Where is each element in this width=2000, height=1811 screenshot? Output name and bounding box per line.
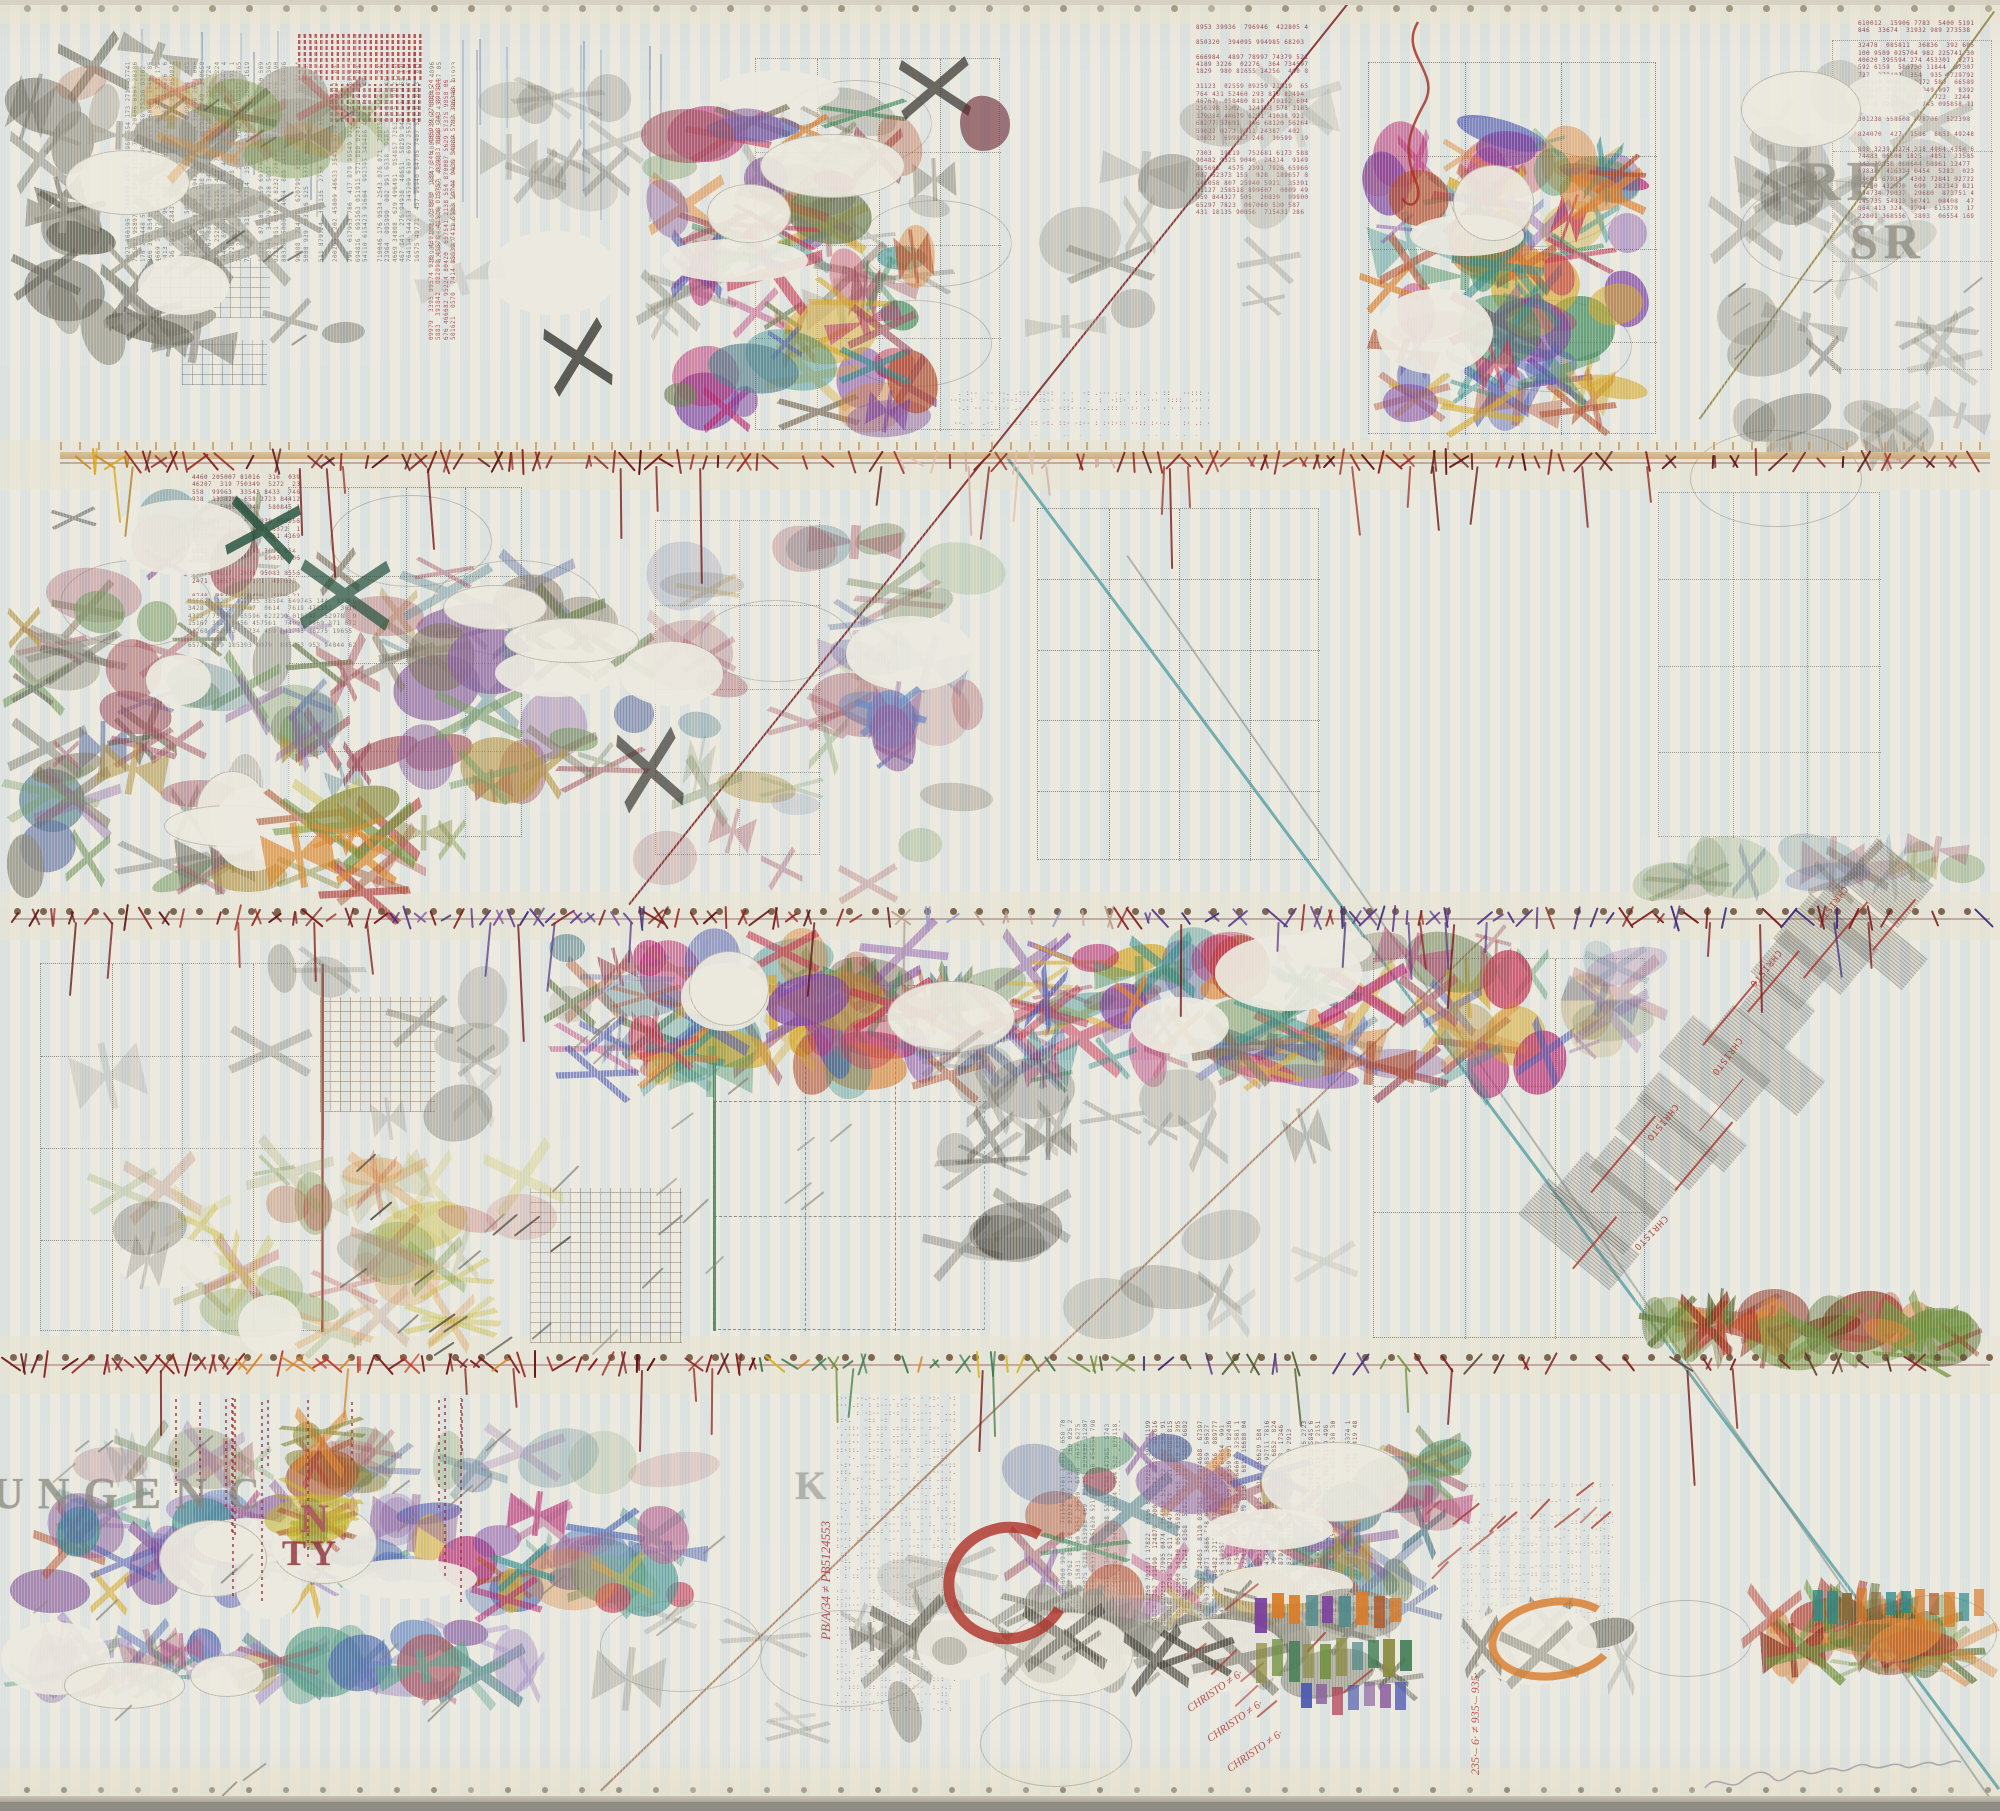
edge-perforation-dot [875,5,882,12]
color-bar [1813,1590,1823,1621]
pencil-shape [50,506,97,530]
color-bar [1272,1593,1284,1618]
pencil-shape [52,59,112,107]
feed-tick [1960,442,1962,450]
feed-tick [174,442,176,450]
perforation-hole [270,1354,277,1361]
feed-tick [459,442,461,450]
edge-perforation-dot [949,1787,955,1793]
color-bar [1368,1640,1379,1669]
color-bar [1352,1642,1363,1670]
pencil-shape [1008,1104,1060,1166]
edge-perforation-dot [209,5,216,12]
thread-stitch [637,1354,639,1371]
red-dotted-drip [267,1398,269,1466]
perforation-hole [1154,1354,1161,1361]
edge-perforation-dot [394,1787,400,1793]
feed-tick [1485,442,1487,450]
edge-perforation-dot [209,1787,215,1793]
stencil-letters: TY [282,1532,340,1574]
edge-perforation-dot [172,1787,178,1793]
edge-perforation-dot [1393,5,1400,12]
perforation-hole [1388,1354,1395,1361]
color-bar [1289,1595,1301,1625]
table-row-line [1659,579,1881,580]
edge-perforation-dot [1652,1787,1658,1793]
pencil-shape [320,213,348,263]
feed-tick [687,442,689,450]
edge-perforation-dot [1356,5,1363,12]
feed-tick [706,442,708,450]
red-dotted-drip [351,1398,353,1461]
print-texture: . :·· ·· ··. .::: ::·: · · ·: .··· ·. · … [950,390,1250,436]
color-bar [1944,1592,1954,1628]
feed-tick [801,442,803,450]
perforation-hole [1648,1354,1655,1361]
feed-tick [421,442,423,450]
perforation-hole [1600,908,1607,915]
perforation-hole [660,1354,667,1361]
thread-long-tail [160,1370,162,1436]
edge-perforation-dot [1208,5,1215,12]
pencil-shape [66,1035,149,1116]
perforation-hole [846,908,853,915]
feed-tick [1941,442,1943,450]
feed-tick [1086,442,1088,450]
perforation-hole [426,1354,433,1361]
edge-perforation-dot [1689,1787,1695,1793]
feed-tick [611,442,613,450]
feed-tick [383,442,385,450]
feed-tick [877,442,879,450]
pencil-shape [180,182,271,219]
perforation-hole [1050,1354,1057,1361]
edge-perforation-dot [616,5,623,12]
feed-tick [1029,442,1031,450]
edge-perforation-dot [1763,5,1770,12]
shape-cluster [610,515,1010,905]
edge-perforation-dot [1800,1787,1806,1793]
perforation-hole [196,908,203,915]
red-dotted-drip [444,1398,446,1576]
pencil-shape [1109,287,1156,330]
pencil-shape [718,1617,812,1659]
edge-perforation-dot [246,1787,252,1793]
shape-cluster [1560,940,1670,1060]
edge-perforation-dot [875,1787,881,1793]
edge-perforation-dot [690,1787,696,1793]
perforation-hole [1960,1354,1967,1361]
perforation-hole [1570,1354,1577,1361]
thread-baseline [60,462,1990,464]
feed-tick [193,442,195,450]
perforation-hole [1158,908,1165,915]
pencil-shape [1249,83,1342,158]
feed-tick [1048,442,1050,450]
edge-perforation-dot [1467,1787,1473,1793]
feed-tick [497,442,499,450]
feed-tick [1257,442,1259,450]
edge-perforation-dot [98,1787,104,1793]
feed-tick [1105,442,1107,450]
feed-tick [326,442,328,450]
pencil-shape [897,826,944,864]
feed-tick [1770,442,1772,450]
red-handwriting: PB/A/34 ≠ PB5124553 [818,1521,834,1640]
perforation-hole [1284,1354,1291,1361]
pencil-shape [1240,284,1286,317]
perforation-hole [1752,1354,1759,1361]
shape-cluster [240,768,470,913]
pencil-shape [1893,305,1981,351]
feed-tick [1295,442,1297,450]
paper-hole-ellipse [1453,165,1534,241]
feed-tick [1694,442,1696,450]
color-bar [1356,1592,1368,1625]
color-bar [1857,1588,1867,1622]
feed-tick [858,442,860,450]
pencil-shape [676,709,722,742]
feed-tick [668,442,670,450]
stencil-letters: C [228,1468,260,1519]
feed-tick [991,442,993,450]
pencil-shape [591,1643,668,1715]
feed-tick [1561,442,1563,450]
perforation-hole [842,1354,849,1361]
edge-perforation-dot [1430,5,1437,12]
feed-tick [516,442,518,450]
feed-tick [1903,442,1905,450]
feed-tick [1200,442,1202,450]
feed-tick [915,442,917,450]
color-bar [1842,1593,1852,1620]
edge-perforation-dot [1837,1787,1843,1793]
shape-cluster [1700,380,1990,490]
edge-perforation-dot [1615,5,1622,12]
pencil-shape [1577,371,1650,405]
edge-perforation-dot [1800,5,1807,12]
perforation-hole [1860,908,1867,915]
edge-perforation-dot [616,1787,622,1793]
color-bar [1827,1591,1837,1624]
perforation-hole [1782,908,1789,915]
paper-hole-ellipse [64,1662,185,1708]
pencil-shape [1235,235,1302,285]
edge-perforation-dot [1726,1787,1732,1793]
perforation-hole [140,1354,147,1361]
feed-tick [136,442,138,450]
feed-tick [212,442,214,450]
edge-perforation-dot [61,5,68,12]
edge-perforation-dot [801,5,808,12]
feed-tick [250,442,252,450]
color-bar [1400,1640,1411,1671]
stencil-letters: K [795,1462,826,1509]
edge-perforation-dot [505,1787,511,1793]
edge-perforation-dot [431,5,438,12]
edge-perforation-dot [542,1787,548,1793]
edge-perforation-dot [1060,1787,1066,1793]
print-texture-block: . :·· ·· ··. .::: ::·: · · ·: .··· ·. · … [950,390,1250,436]
feed-tick [1922,442,1924,450]
pencil-shape [1145,1432,1193,1465]
edge-perforation-dot [986,1787,992,1793]
colorbar-row [1300,1682,1410,1712]
feed-tick [1751,442,1753,450]
pencil-shape [369,1095,408,1142]
feed-tick [592,442,594,450]
feed-tick [1865,442,1867,450]
edge-perforation-dot [949,5,956,12]
edge-perforation-dot [579,1787,585,1793]
table-row-line [1659,666,1881,667]
edge-perforation-dot [1911,1787,1917,1793]
color-bar [1886,1592,1896,1614]
edge-perforation-dot [912,5,919,12]
feed-tick [1314,442,1316,450]
perforation-hole [556,1354,563,1361]
perforation-hole [1466,1354,1473,1361]
stencil-letters: UNGEN [0,1468,221,1519]
color-bar [1395,1682,1406,1710]
red-dotted-drip [438,1398,440,1508]
pencil-shape [296,949,357,1003]
perforation-hole [820,908,827,915]
feed-tick [1827,442,1829,450]
pencil-shape [1176,1202,1266,1268]
pencil-shape [455,963,511,1031]
edge-perforation-dot [727,1787,733,1793]
color-bar [1380,1684,1391,1709]
pencil-shape [547,984,594,1026]
perforation-hole [1492,1354,1499,1361]
feed-tick [1143,442,1145,450]
perforation-hole [118,908,125,915]
pencil-shape [228,1025,313,1077]
feed-tick [1789,442,1791,450]
edge-perforation-dot [1023,5,1030,12]
feed-tick [79,442,81,450]
color-bar [1339,1596,1351,1626]
shape-cluster [990,70,1350,360]
feed-tick [1162,442,1164,450]
pencil-shape [1291,1240,1360,1284]
edge-perforation-dot [468,5,475,12]
pencil-shape [1237,156,1297,231]
edge-perforation-dot [283,5,290,12]
color-bar [1374,1596,1386,1627]
color-bar [1320,1644,1331,1680]
red-dotted-drip [461,1398,463,1451]
feed-tick [1656,442,1658,450]
edge-perforation-dot [468,1787,474,1793]
paper-hole-ellipse [138,256,229,315]
feed-tick [1979,442,1981,450]
edge-perforation-dot [1652,5,1659,12]
feed-tick [478,442,480,450]
edge-perforation-dot [1023,1787,1029,1793]
thread-tail [710,1368,712,1435]
perforation-hole [40,908,47,915]
feed-tick [1884,442,1886,450]
color-bar [1915,1589,1925,1624]
feed-tick [1580,442,1582,450]
feed-tick [1409,442,1411,450]
color-bar [1272,1639,1283,1676]
colorbar-row [1255,1592,1405,1632]
feed-tick [896,442,898,450]
pencil-shape [332,1226,421,1285]
feed-tick [1504,442,1506,450]
perforation-hole [170,908,177,915]
edge-perforation-dot [1578,5,1585,12]
edge-perforation-dot [172,5,179,12]
perforation-hole [1076,1354,1083,1361]
perforation-hole [1544,1354,1551,1361]
feed-tick [839,442,841,450]
edge-perforation-dot [764,1787,770,1793]
feed-tick [1846,442,1848,450]
pencil-shape [760,846,805,892]
artwork-photo: 5027 860195 766050 4585 74960 554 173 27… [0,0,2000,1811]
feed-tick [725,442,727,450]
paper-hole-ellipse [707,184,791,243]
edge-perforation-dot [1726,5,1733,12]
edge-perforation-dot [1874,5,1881,12]
edge-perforation-dot [1282,5,1289,12]
table-row-line [1038,791,1320,792]
edge-perforation-dot [24,1787,30,1793]
table-column-line [1109,509,1110,861]
thread-stitch [1841,456,1844,468]
thread-stitch [1836,907,1838,929]
feed-tick [1523,442,1525,450]
feed-tick [155,442,157,450]
edge-perforation-dot [1541,5,1548,12]
edge-perforation-dot [986,5,993,12]
perforation-hole [222,908,229,915]
shape-cluster [1358,118,1653,438]
perforation-hole [582,1354,589,1361]
edge-perforation-dot [653,1787,659,1793]
perforation-hole [868,1354,875,1361]
perforation-hole [998,1354,1005,1361]
feed-tick [535,442,537,450]
perforation-hole [894,1354,901,1361]
pencil-shape [919,780,995,814]
edge-perforation-dot [579,5,586,12]
color-bar [1316,1684,1327,1704]
pencil-shape [581,69,636,126]
color-bar [1364,1682,1375,1705]
color-bar [1383,1639,1394,1676]
feed-tick [744,442,746,450]
edge-perforation-dot [24,5,31,12]
pencil-shape [930,1635,968,1666]
thread-stitch [1713,455,1715,468]
edge-perforation-dot [1874,1787,1880,1793]
edge-perforation-dot [1097,5,1104,12]
perforation-hole [1986,1354,1993,1361]
paper-hole-ellipse [662,239,808,282]
feed-tick [573,442,575,450]
red-handwriting: 235·– 6· ≠ 935·– 935· [1468,1672,1483,1775]
feed-tick [1428,442,1430,450]
color-bar [1255,1598,1267,1633]
pencil-shape [1025,314,1107,340]
tractor-feed-strip [60,452,1990,459]
feed-tick [364,442,366,450]
color-bar [1348,1685,1359,1710]
pencil-shape [883,1677,927,1745]
feed-tick [972,442,974,450]
edge-perforation-dot [1948,5,1955,12]
pencil-shape [1475,130,1536,166]
edge-perforation-dot [1356,1787,1362,1793]
pencil-shape [640,174,696,243]
edge-perforation-dot [394,5,401,12]
edge-perforation-dot [135,1787,141,1793]
feed-tick [934,442,936,450]
feed-tick [288,442,290,450]
shape-cluster [640,100,940,440]
perforation-hole [712,1354,719,1361]
feed-tick [307,442,309,450]
perforation-hole [1808,908,1815,915]
feed-tick [782,442,784,450]
perforation-hole [1964,908,1971,915]
color-bar [1929,1593,1939,1615]
perforation-hole [946,1354,953,1361]
edge-perforation-dot [542,5,549,12]
edge-perforation-dot [98,5,105,12]
perforation-hole [872,908,879,915]
table-row-line [1038,720,1320,721]
perforation-hole [10,1354,17,1361]
edge-perforation-dot [1504,5,1511,12]
shape-cluster [0,1616,565,1708]
edge-perforation-dot [505,5,512,12]
red-dotted-drip [225,1398,227,1507]
color-bar [1336,1638,1347,1676]
perforation-hole [1184,908,1191,915]
table-row-line [1038,650,1320,651]
color-bar [1901,1591,1911,1613]
paper-hole-ellipse [146,655,211,705]
edge-perforation-dot [1430,1787,1436,1793]
feed-tick [1333,442,1335,450]
edge-perforation-dot [431,1787,437,1793]
paper-hole-ellipse [620,642,723,706]
edge-perforation-dot [357,5,364,12]
pencil-shape [321,321,365,345]
pencil-shape [642,536,728,617]
color-bar [1256,1643,1267,1682]
edge-perforation-dot [1134,5,1141,12]
shape-cluster [1000,1060,1360,1340]
colorbar-row [1255,1638,1415,1680]
paper-top-edge [0,0,2000,5]
edge-perforation-dot [690,5,697,12]
pencil-shape [837,864,898,905]
perforation-hole [144,908,151,915]
feed-tick [1447,442,1449,450]
feed-tick [554,442,556,450]
table-row-line [1038,579,1320,580]
shape-cluster [872,672,914,772]
edge-perforation-dot [1541,1787,1547,1793]
edge-perforation-dot [727,5,734,12]
